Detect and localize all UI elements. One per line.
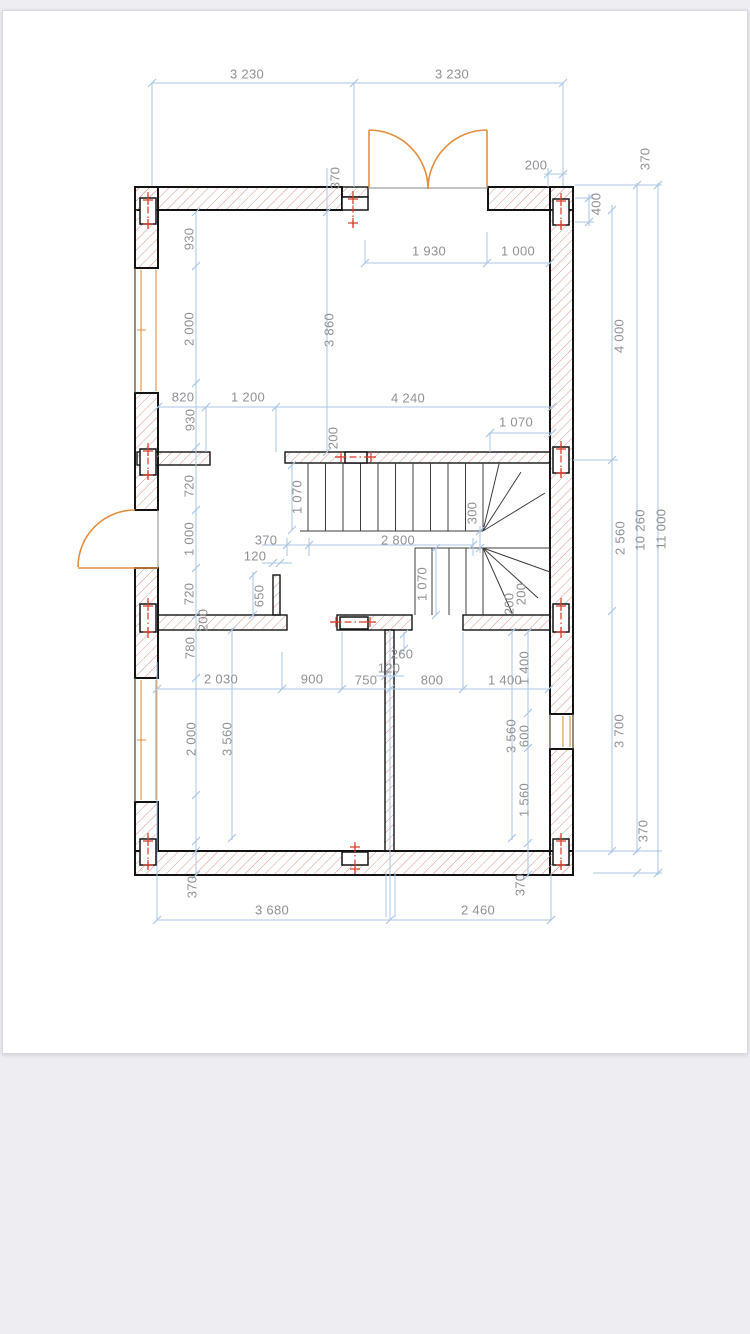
axis-markers	[140, 191, 569, 874]
dimension-label: 750	[355, 672, 378, 687]
dimension-label: 200	[325, 427, 340, 450]
dimension-label: 3 700	[611, 714, 626, 748]
window-right	[550, 714, 573, 749]
dimension-label: 1 000	[501, 243, 535, 258]
dimension-label: 3 230	[435, 66, 469, 81]
interior-wall	[158, 615, 287, 630]
dimension-label: 1 070	[499, 414, 533, 429]
dimension-label: 370	[637, 148, 652, 171]
axis-cross-marks	[143, 194, 566, 874]
dimension-label: 780	[182, 637, 197, 660]
dimension-label: 120	[378, 660, 401, 675]
dimension-label: 370	[635, 820, 650, 843]
dimension-label: 600	[516, 725, 531, 748]
dimension-label: 2 560	[612, 521, 627, 555]
dimension-label: 1 560	[516, 783, 531, 817]
dimension-label: 1 400	[516, 651, 531, 685]
dimension-label: 2 030	[204, 671, 238, 686]
dimension-label: 930	[182, 409, 197, 432]
dimension-label: 4 000	[611, 319, 626, 353]
dimension-label: 720	[181, 475, 196, 498]
dimension-label: 120	[244, 548, 267, 563]
dimension-label: 200	[525, 157, 548, 172]
wall-stub	[273, 575, 280, 615]
dimension-label: 3 230	[230, 66, 264, 81]
dimension-label: 200	[195, 609, 210, 632]
dimension-label: 720	[181, 583, 196, 606]
dimension-label: 800	[421, 672, 444, 687]
dimension-label: 400	[588, 193, 603, 216]
dimension-label: 650	[251, 585, 266, 608]
floor-plan-drawing: 3 2303 2301 9301 0002008201 2004 2401 07…	[0, 0, 750, 1334]
dimension-label: 4 240	[391, 390, 425, 405]
dimension-label: 1 070	[289, 480, 304, 514]
dimension-label: 11 000	[653, 509, 668, 550]
window-left-lower	[135, 678, 156, 802]
dimension-label: 10 260	[632, 509, 647, 551]
dimension-label: 260	[391, 646, 414, 661]
dimension-label: 2 000	[183, 722, 198, 756]
dimension-label: 2 460	[461, 902, 495, 917]
app-background: { "page": { "kind_label": "floor-plan-sh…	[0, 0, 750, 1334]
dimension-label: 370	[512, 874, 527, 897]
dimension-label: 3 680	[255, 902, 289, 917]
dimension-label: 2 800	[381, 532, 415, 547]
dimension-label: 1 200	[231, 389, 265, 404]
dimension-label: 1 070	[414, 567, 429, 601]
dimension-label: 1 000	[181, 522, 196, 556]
dimension-label: 3 560	[219, 722, 234, 756]
dimension-label: 820	[172, 389, 195, 404]
dimension-label: 370	[255, 532, 278, 547]
dimension-label: 900	[301, 671, 324, 686]
dimension-label: 300	[464, 502, 479, 525]
dimension-label: 3 860	[321, 313, 336, 347]
interior-wall	[463, 615, 550, 630]
window-left-upper	[135, 268, 156, 393]
entry-double-door	[368, 130, 488, 189]
dimension-label: 370	[184, 876, 199, 899]
side-door	[78, 510, 158, 568]
dimension-label: 930	[181, 228, 196, 251]
dimension-label: 1 930	[412, 243, 446, 258]
dimension-label: 200	[513, 583, 528, 606]
dimension-label: 2 000	[181, 312, 196, 346]
dimension-label: 370	[327, 167, 342, 190]
